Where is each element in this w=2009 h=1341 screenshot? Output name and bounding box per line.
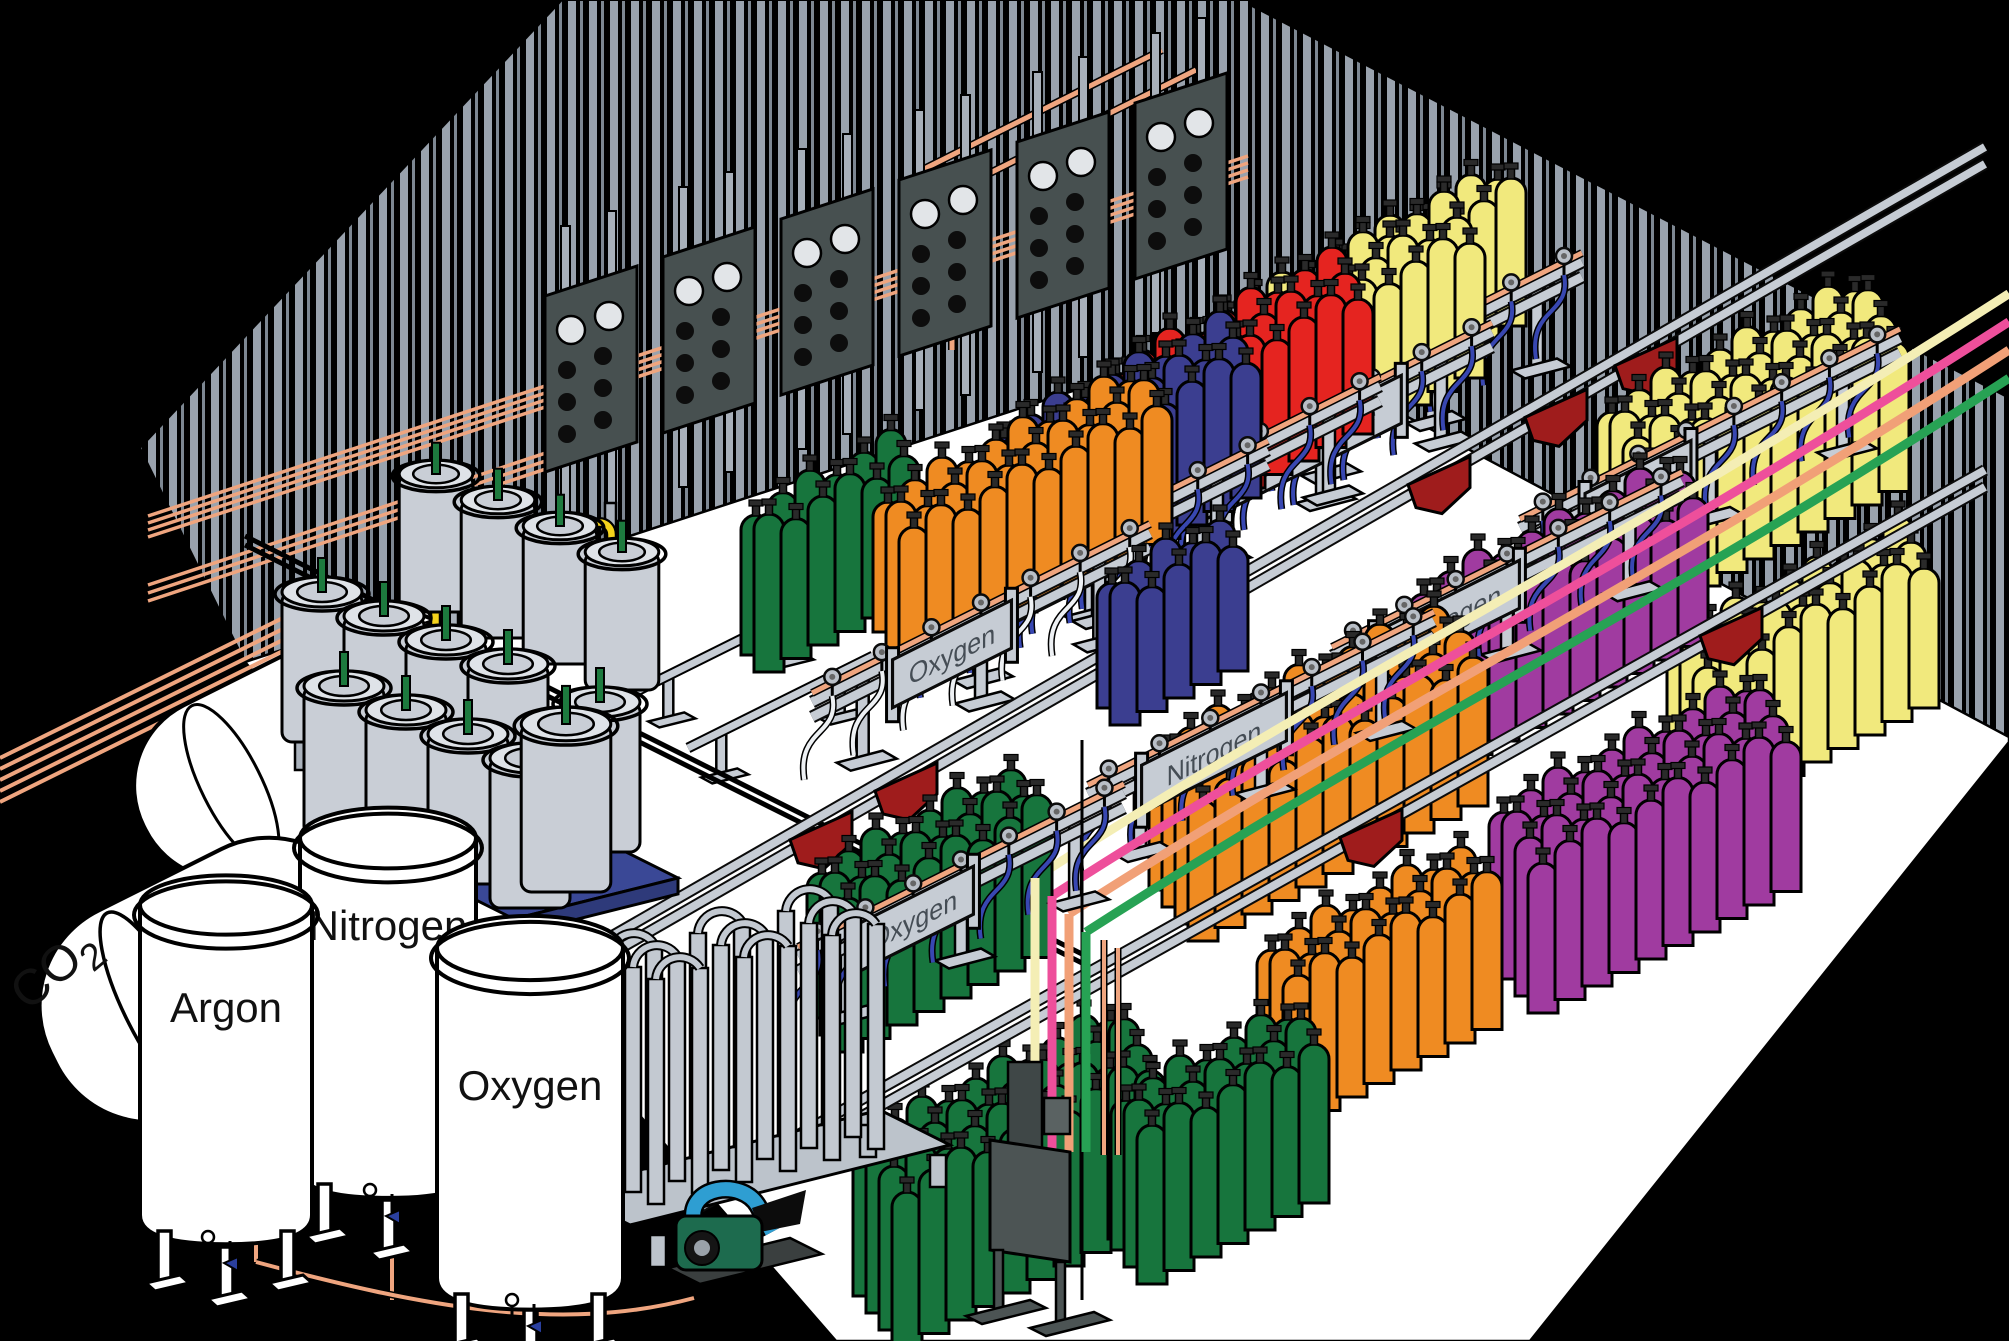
cryogenic-dewar [578,521,666,690]
storage-tank-argon-label: Argon [170,984,282,1031]
storage-tank-oxygen: Oxygen [431,916,629,1341]
gas-cylinder [1909,553,1939,708]
plant-illustration: ArgonCarbon DioxideHeliumNitrogenOxygen … [0,0,2009,1341]
corner-control-panel [990,1140,1070,1262]
gas-cylinder [1771,727,1801,892]
gas-cylinder [1218,531,1248,671]
cryogenic-dewar [514,686,618,892]
gas-filling-plant-scene: ArgonCarbon DioxideHeliumNitrogenOxygen … [0,0,2009,1341]
storage-tank-argon: Argon [134,875,318,1307]
gas-cylinder [1299,1029,1329,1203]
gas-cylinder [1472,857,1502,1030]
storage-tank-oxygen-label: Oxygen [458,1062,603,1109]
